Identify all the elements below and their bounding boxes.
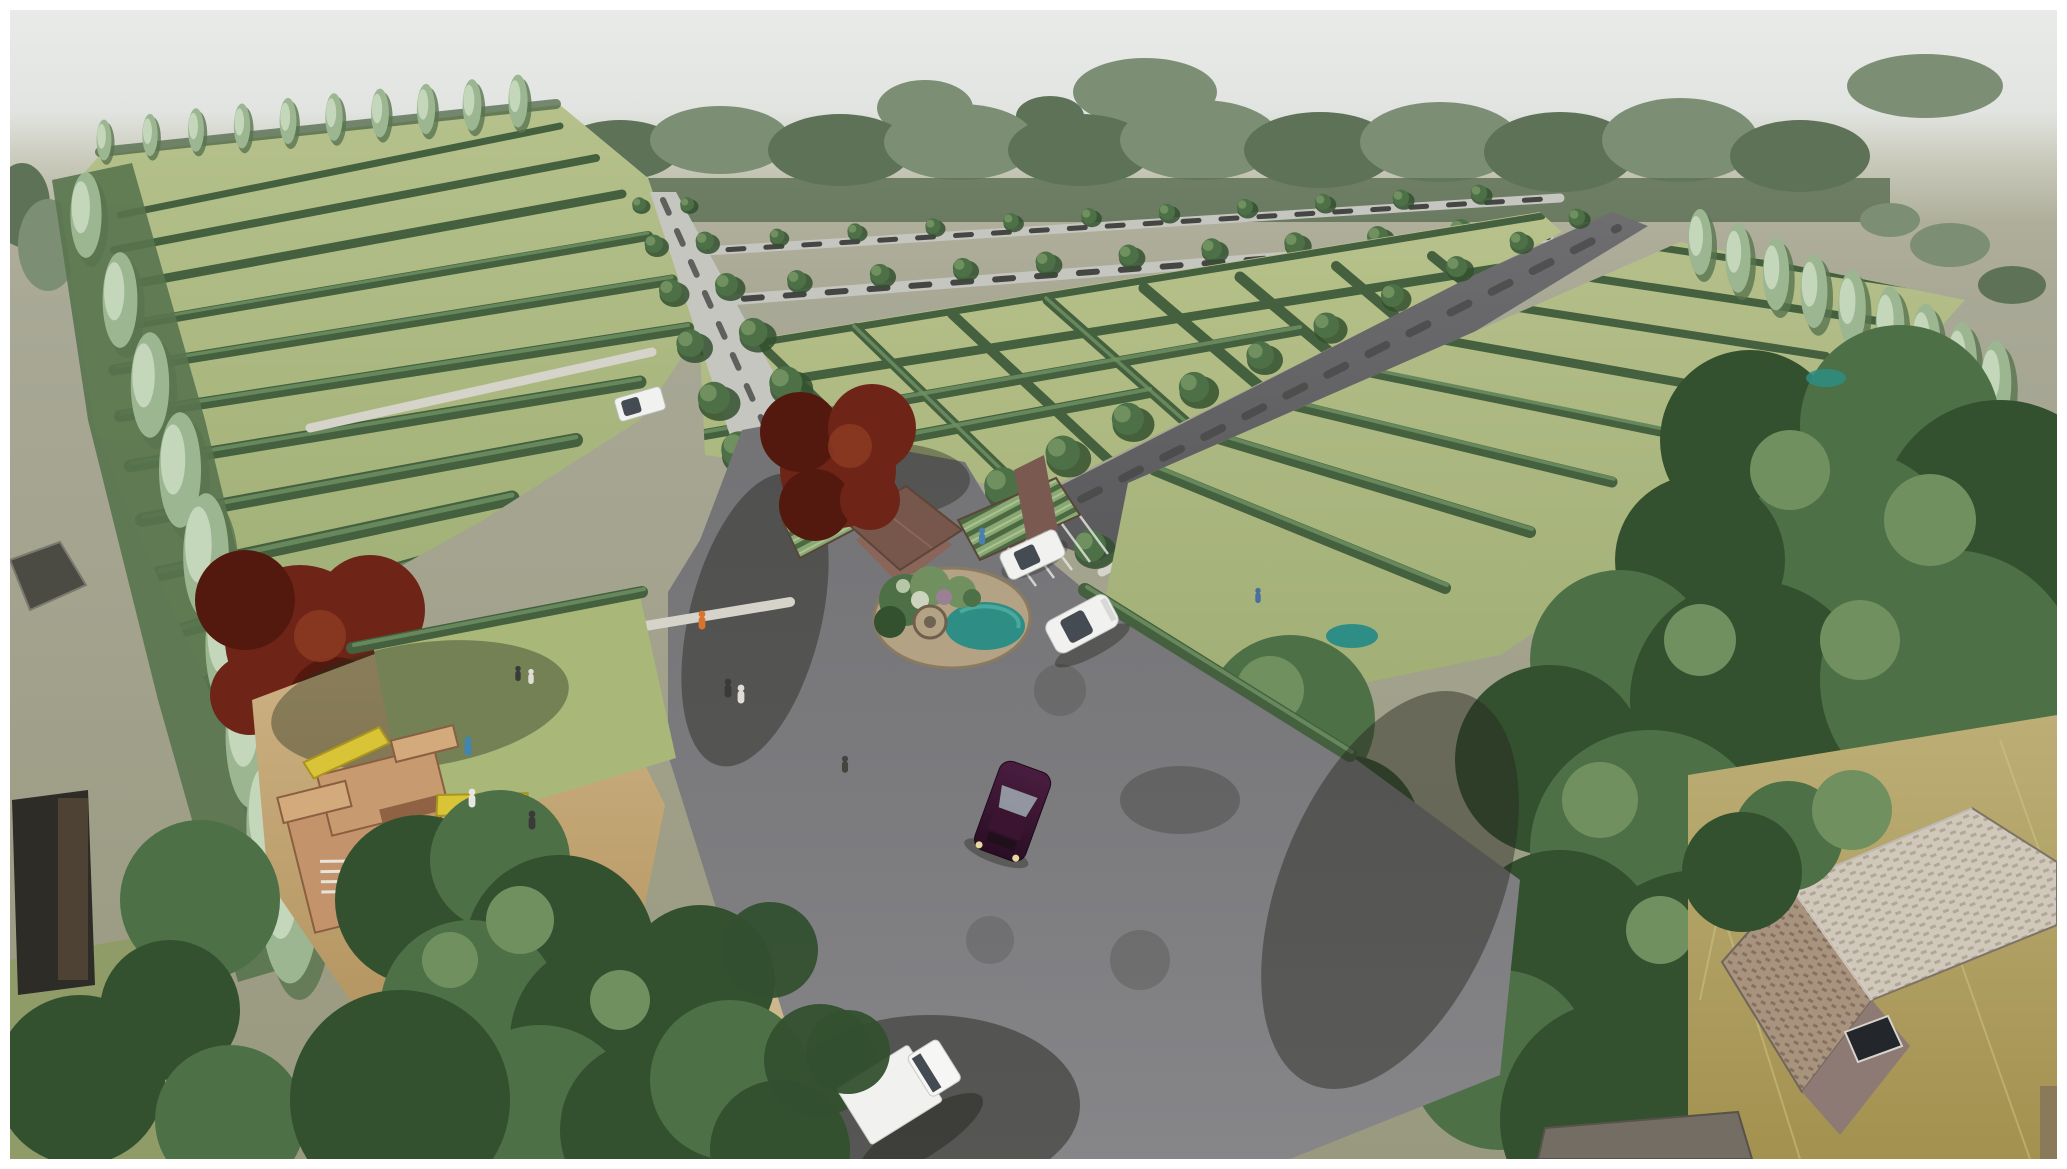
person (465, 737, 472, 756)
fountain (874, 566, 1030, 668)
forest-pond (1326, 624, 1378, 648)
person (515, 666, 520, 681)
person (699, 611, 706, 630)
person (738, 685, 745, 704)
forest-pond-small (1806, 369, 1846, 387)
render-canvas (0, 0, 2067, 1169)
fountain-pond (945, 602, 1025, 650)
red-maple-entrance (760, 384, 916, 541)
person (528, 669, 533, 684)
person (725, 679, 732, 698)
fence-piece (2040, 1086, 2057, 1162)
person (529, 811, 536, 830)
person (1255, 588, 1260, 603)
person (979, 528, 985, 545)
aerial-render (0, 0, 2067, 1169)
person (842, 756, 848, 773)
tree (806, 1010, 890, 1094)
person (469, 789, 476, 808)
